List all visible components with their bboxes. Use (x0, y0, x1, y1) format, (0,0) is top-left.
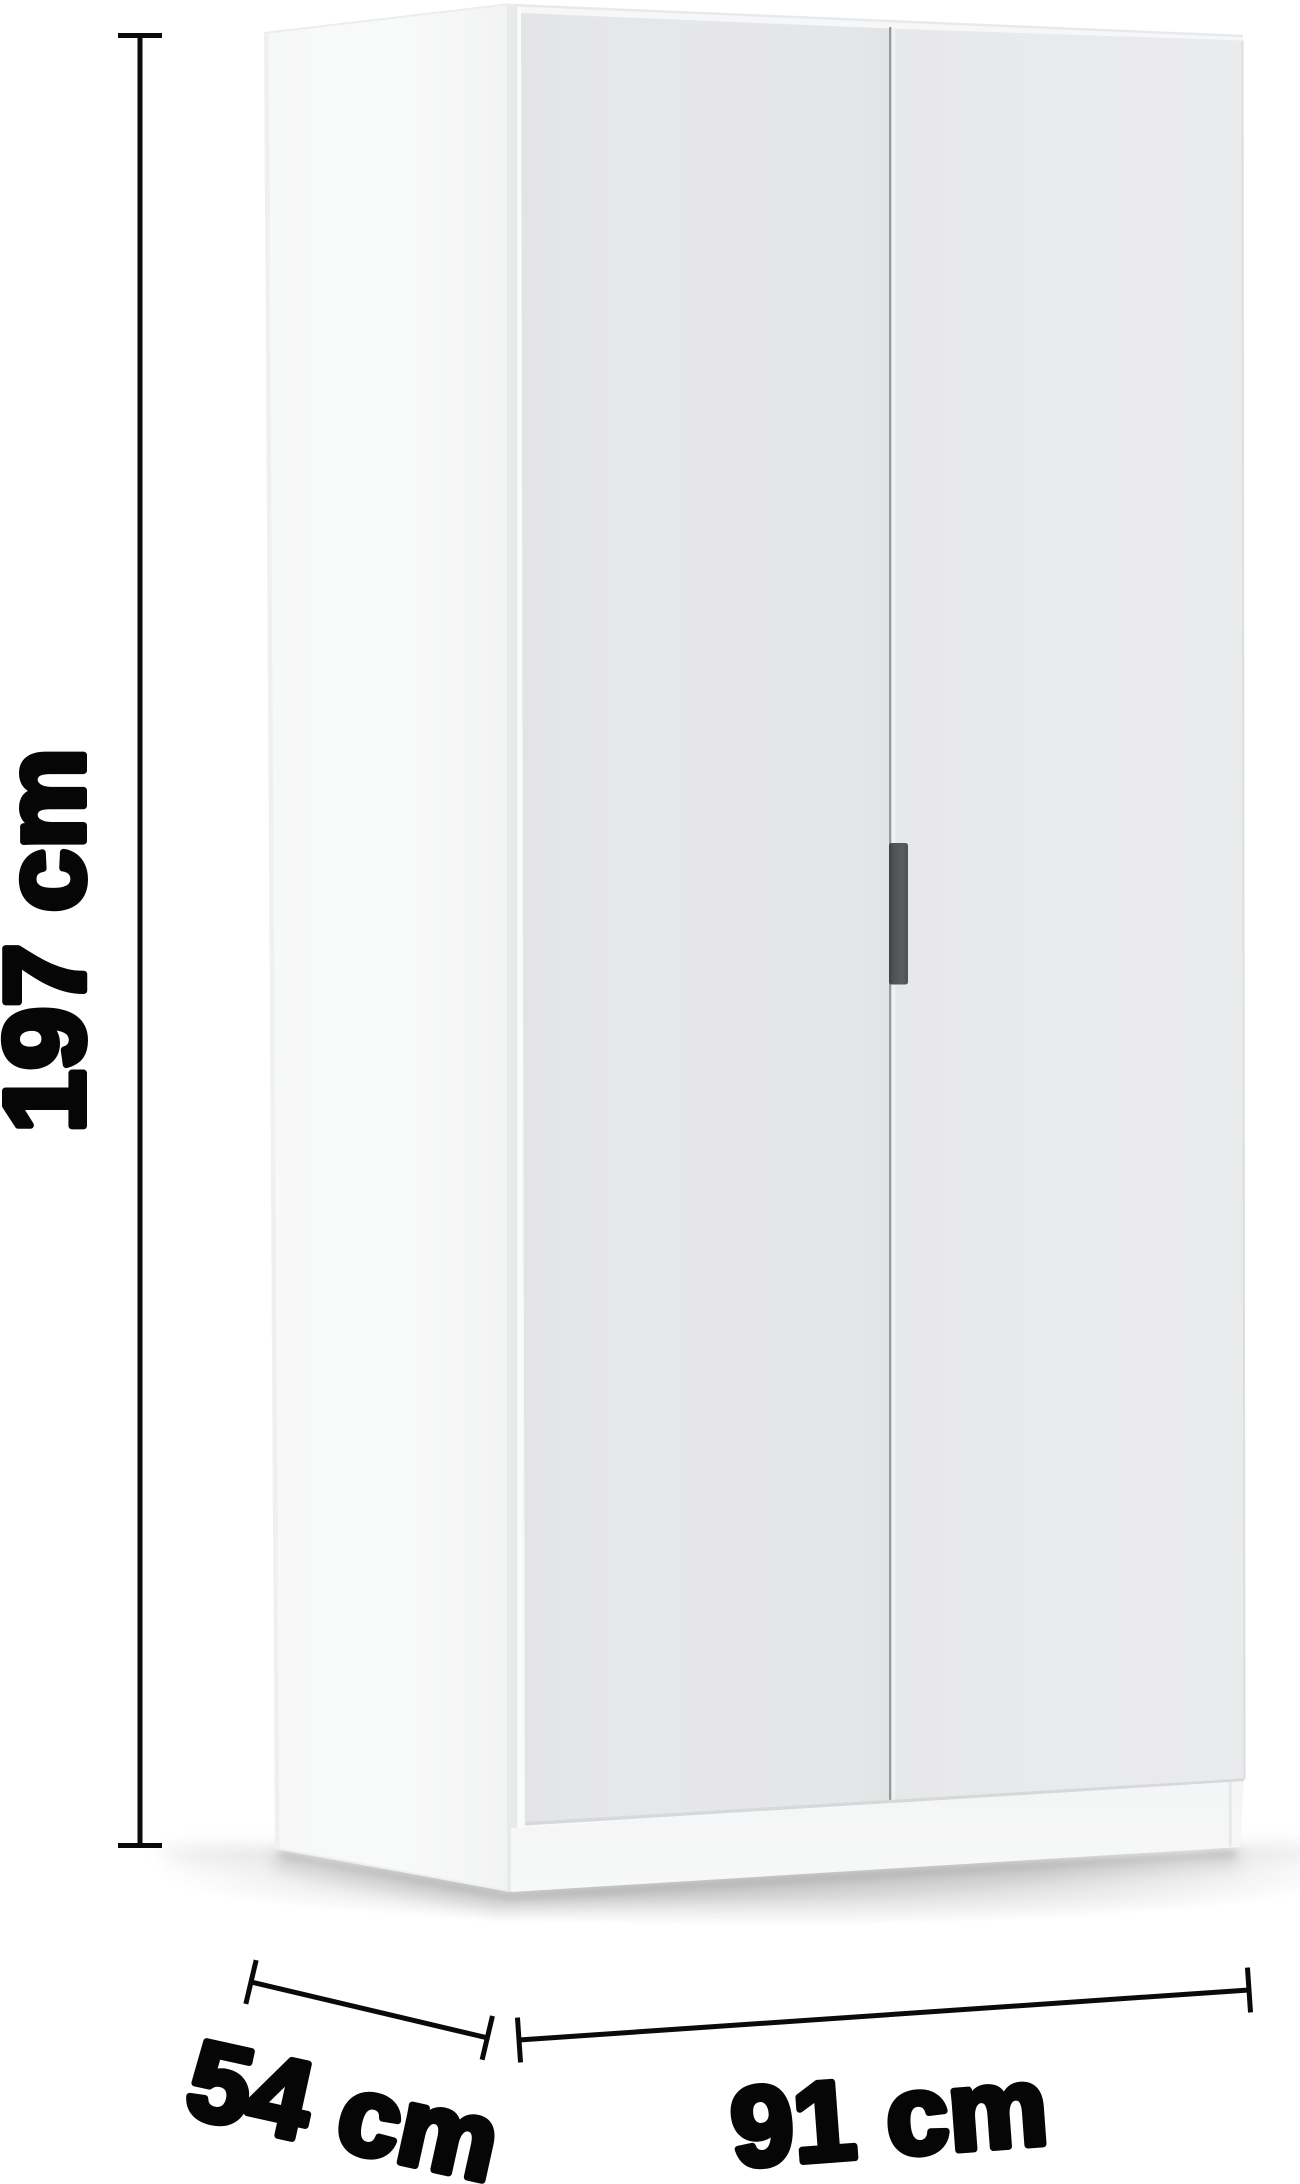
svg-text:91 cm: 91 cm (727, 2043, 1052, 2184)
svg-text:54 cm: 54 cm (177, 2018, 510, 2184)
svg-text:197 cm: 197 cm (0, 748, 109, 1133)
